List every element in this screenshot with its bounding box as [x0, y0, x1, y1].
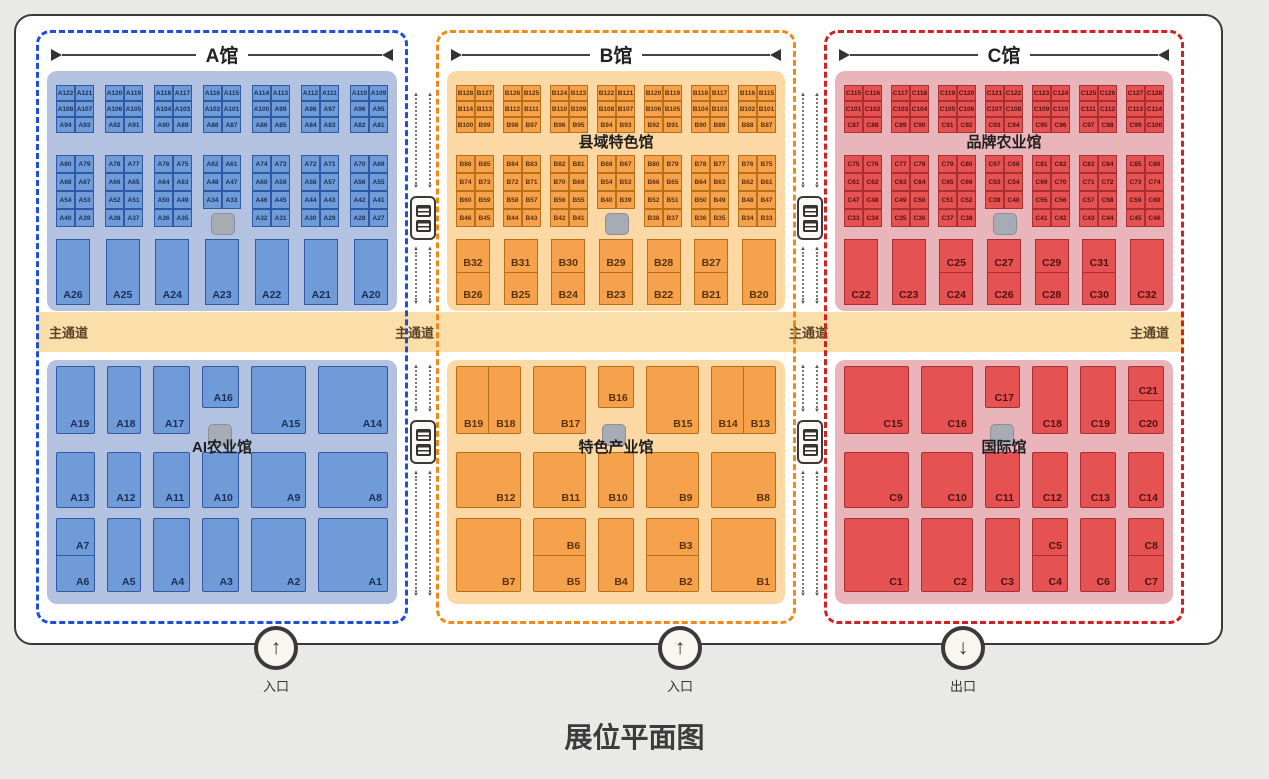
booth-large: A2 — [251, 518, 306, 592]
booth: C81 — [1032, 155, 1051, 173]
booth-label: A4 — [171, 576, 184, 588]
double-arrow-icon: ▲▼ — [412, 364, 420, 414]
booth-large: B12 — [456, 452, 521, 508]
booth: A86 — [252, 117, 271, 133]
booth: B78 — [691, 155, 710, 173]
booth-block: B120B119B106B105B92B91 — [644, 85, 682, 133]
booth: C117 — [891, 85, 910, 101]
booth-block: C115C116C101C102C87C88 — [844, 85, 882, 133]
booth-half: C4 — [1033, 556, 1067, 592]
booth-large: C22 — [844, 239, 878, 305]
booth-label: A15 — [281, 418, 300, 430]
booth: A73 — [271, 155, 290, 173]
booth-large: C11 — [985, 452, 1020, 508]
booth: B121 — [616, 85, 635, 101]
booth: A103 — [173, 101, 192, 117]
vertical-aisle-flow: ▲▼▲▼ — [799, 470, 821, 598]
booth-half: B32 — [457, 240, 489, 273]
booth-half: B24 — [552, 273, 584, 305]
booth: A60 — [252, 173, 271, 191]
booth-half: B21 — [695, 273, 727, 305]
booth: B41 — [569, 209, 588, 227]
booth-label: C8 — [1145, 540, 1158, 552]
booth: B56 — [550, 191, 569, 209]
escalator-step-glyph — [416, 205, 431, 217]
booth-large: C31C30 — [1082, 239, 1116, 305]
booth-block: A76A75A64A63A50A49A36A35 — [154, 155, 192, 227]
booth-label: C18 — [1043, 418, 1062, 430]
flow-arrow-down-icon: ▼ — [413, 408, 419, 414]
dotted-line — [429, 98, 431, 184]
exit-circle: ↓ — [941, 626, 985, 670]
booth: B34 — [738, 209, 757, 227]
booth: B80 — [644, 155, 663, 173]
booth-label: B16 — [609, 392, 628, 404]
vertical-aisle-flow: ▲▼▲▼ — [412, 246, 434, 306]
dotted-line — [429, 252, 431, 300]
booth: A50 — [154, 191, 173, 209]
hall-top-panel: C115C116C101C102C87C88C117C118C103C104C8… — [835, 71, 1173, 311]
booth: C108 — [1004, 101, 1023, 117]
hall-header: A馆 — [51, 41, 393, 68]
booth-label: A23 — [206, 289, 238, 301]
booth-block: C75C76C61C62C47C48C33C34 — [844, 155, 882, 227]
dimension-left-marker-icon — [839, 49, 850, 61]
booth-large: A24 — [155, 239, 189, 305]
flow-arrow-down-icon: ▼ — [413, 184, 419, 190]
booth-label: B28 — [648, 257, 680, 269]
booth: C45 — [1126, 209, 1145, 227]
booth: C62 — [863, 173, 882, 191]
booth-large: C6 — [1080, 518, 1116, 592]
booth-label: B12 — [496, 492, 515, 504]
booth-large: A25 — [106, 239, 140, 305]
escalator-icon — [410, 196, 436, 240]
booth-half: B14 — [712, 367, 744, 433]
double-arrow-icon: ▲▼ — [426, 92, 434, 190]
booth: B63 — [710, 173, 729, 191]
vertical-aisle-flow: ▲▼▲▼ — [412, 470, 434, 598]
booth-label: C27 — [988, 257, 1020, 269]
double-arrow-icon: ▲▼ — [426, 470, 434, 598]
booth-label: B25 — [505, 289, 537, 301]
arrow-up-icon: ↑ — [675, 636, 686, 660]
booth: A62 — [203, 155, 222, 173]
booth-label: B11 — [562, 492, 581, 504]
booth-label: A20 — [355, 289, 387, 301]
booth: C51 — [938, 191, 957, 209]
booth: B43 — [522, 209, 541, 227]
booth: C33 — [844, 209, 863, 227]
escalator-icon — [410, 420, 436, 464]
booth: A106 — [105, 101, 124, 117]
booth: C58 — [1098, 191, 1117, 209]
booth-label: A14 — [363, 418, 382, 430]
booth: C125 — [1079, 85, 1098, 101]
small-booth-section-upper: C115C116C101C102C87C88C117C118C103C104C8… — [844, 85, 1164, 133]
booth-large: B8 — [711, 452, 776, 508]
flow-arrow-down-icon: ▼ — [800, 300, 806, 306]
booth: B69 — [569, 173, 588, 191]
booth-large: B11 — [533, 452, 586, 508]
hall-bottom-panel: B19B18B17B16B15B14B13B12B11B10B9B8B7B6B5… — [447, 360, 785, 604]
booth-large: A9 — [251, 452, 306, 508]
booth: B54 — [597, 173, 616, 191]
page-title: 展位平面图 — [0, 716, 1269, 756]
booth: C77 — [891, 155, 910, 173]
booth-label: C30 — [1083, 289, 1115, 301]
bottom-booth-row: A13A12A11A10A9A8 — [56, 452, 388, 508]
booth: B111 — [522, 101, 541, 117]
booth-block: C119C120C105C106C91C92 — [938, 85, 976, 133]
booth: A41 — [369, 191, 388, 209]
dotted-line — [429, 370, 431, 408]
booth: B124 — [550, 85, 569, 101]
booth: A111 — [320, 85, 339, 101]
booth-block: B76B75B62B61B48B47B34B33 — [738, 155, 776, 227]
booth: B42 — [550, 209, 569, 227]
mid-booth-row: B32B26B31B25B30B24B29B23B28B22B27B21B20 — [456, 239, 776, 305]
booth: C44 — [1098, 209, 1117, 227]
hall-header: B馆 — [451, 41, 781, 68]
booth-large: B27B21 — [694, 239, 728, 305]
booth-label: B26 — [457, 289, 489, 301]
booth: A122 — [56, 85, 75, 101]
booth: B119 — [663, 85, 682, 101]
booth: A33 — [222, 191, 241, 209]
dimension-right-marker-icon — [382, 49, 393, 61]
booth-half: B3 — [647, 519, 698, 556]
escalator-step-glyph — [803, 220, 818, 232]
bottom-booth-row: B12B11B10B9B8 — [456, 452, 776, 508]
escalator-icon — [797, 420, 823, 464]
hall-section-label: 特色产业馆 — [447, 436, 785, 457]
booth: B58 — [503, 191, 522, 209]
booth-large: B7 — [456, 518, 521, 592]
booth: C69 — [1032, 173, 1051, 191]
booth-large: A10 — [202, 452, 239, 508]
booth: B62 — [738, 173, 757, 191]
booth: A118 — [154, 85, 173, 101]
double-arrow-icon: ▲▼ — [426, 246, 434, 306]
booth-label: A6 — [76, 576, 89, 588]
booth-large: A1 — [318, 518, 388, 592]
booth-large: B17 — [533, 366, 586, 434]
booth-label: A24 — [156, 289, 188, 301]
booth-block: B116B115B102B101B88B87 — [738, 85, 776, 133]
booth: C86 — [1145, 155, 1164, 173]
booth-block: A120A119A106A105A92A91 — [105, 85, 143, 133]
booth-block: C77C78C63C64C49C50C35C36 — [891, 155, 929, 227]
dotted-line — [802, 252, 804, 300]
hall-section-label: 品牌农业馆 — [835, 131, 1173, 152]
booth-large: A4 — [153, 518, 190, 592]
booth: B125 — [522, 85, 541, 101]
booth: A63 — [173, 173, 192, 191]
booth-block: A122A121A108A107A94A93 — [56, 85, 94, 133]
booth-large: C10 — [921, 452, 973, 508]
booth: A105 — [124, 101, 143, 117]
booth: A37 — [124, 209, 143, 227]
booth: A54 — [56, 191, 75, 209]
booth-label: A3 — [219, 576, 232, 588]
vertical-aisle-flow: ▲▼▲▼ — [412, 364, 434, 414]
dimension-line — [462, 54, 590, 56]
booth-half: C31 — [1083, 240, 1115, 273]
double-arrow-icon: ▲▼ — [799, 470, 807, 598]
hall-name: B馆 — [600, 41, 633, 68]
booth-block: B118B117B104B103B90B89 — [691, 85, 729, 133]
booth-large: A12 — [107, 452, 141, 508]
booth: A66 — [105, 173, 124, 191]
booth: C104 — [910, 101, 929, 117]
booth-block: C81C82C69C70C55C56C41C42 — [1032, 155, 1070, 227]
booth-large: C18 — [1032, 366, 1068, 434]
booth: B114 — [456, 101, 475, 117]
booth-label: B7 — [502, 576, 515, 588]
booth: B57 — [522, 191, 541, 209]
hall-bottom-panel: C15C16C17C18C19C21C20C9C10C11C12C13C14C1… — [835, 360, 1173, 604]
booth: C56 — [1051, 191, 1070, 209]
booth: C122 — [1004, 85, 1023, 101]
booth: B51 — [663, 191, 682, 209]
booth-label: A8 — [369, 492, 382, 504]
booth: B74 — [456, 173, 475, 191]
booth: B40 — [597, 191, 616, 209]
entrance-circle: ↑ — [658, 626, 702, 670]
booth-large: B19B18 — [456, 366, 521, 434]
bottom-booth-row: C1C2C3C5C4C6C8C7 — [844, 518, 1164, 592]
booth-large: A8 — [318, 452, 388, 508]
booth: B35 — [710, 209, 729, 227]
booth: C72 — [1098, 173, 1117, 191]
small-booth-section-upper: A122A121A108A107A94A93A120A119A106A105A9… — [56, 85, 388, 133]
booth-label: B32 — [457, 257, 489, 269]
booth: A64 — [154, 173, 173, 191]
booth-half: A6 — [57, 556, 94, 592]
booth: B45 — [475, 209, 494, 227]
booth-block: A78A77A66A65A52A51A38A37 — [105, 155, 143, 227]
hall-name: C馆 — [988, 41, 1021, 68]
booth-large: A3 — [202, 518, 239, 592]
booth: A100 — [252, 101, 271, 117]
booth: C64 — [910, 173, 929, 191]
booth: C59 — [1126, 191, 1145, 209]
booth-label: B8 — [757, 492, 770, 504]
booth-label: B18 — [496, 418, 515, 430]
booth-label: A12 — [116, 492, 135, 504]
booth-large: C25C24 — [939, 239, 973, 305]
flow-arrow-down-icon: ▼ — [427, 592, 433, 598]
hall-name: A馆 — [206, 41, 239, 68]
booth-large: C1 — [844, 518, 909, 592]
booth: A113 — [271, 85, 290, 101]
booth: A104 — [154, 101, 173, 117]
booth: C48 — [863, 191, 882, 209]
booth: C112 — [1098, 101, 1117, 117]
booth-label: C1 — [889, 576, 902, 588]
booth: B82 — [550, 155, 569, 173]
double-arrow-icon: ▲▼ — [813, 364, 821, 414]
booth: A27 — [369, 209, 388, 227]
booth-large: B31B25 — [504, 239, 538, 305]
hall-bottom-panel: A19A18A17A16A15A14A13A12A11A10A9A8A7A6A5… — [47, 360, 397, 604]
booth: A46 — [252, 191, 271, 209]
booth-label: C5 — [1049, 540, 1062, 552]
double-arrow-icon: ▲▼ — [412, 470, 420, 598]
booth: C67 — [985, 155, 1004, 173]
booth-large: C2 — [921, 518, 973, 592]
booth: C111 — [1079, 101, 1098, 117]
bottom-booth-row: C9C10C11C12C13C14 — [844, 452, 1164, 508]
booth: C60 — [1145, 191, 1164, 209]
booth: B66 — [644, 173, 663, 191]
booth: B59 — [475, 191, 494, 209]
booth: A114 — [252, 85, 271, 101]
booth-label: C21 — [1139, 385, 1158, 397]
booth: A47 — [222, 173, 241, 191]
booth-half: B13 — [744, 367, 775, 433]
booth-block: C123C124C109C110C95C96 — [1032, 85, 1070, 133]
booth-large: A13 — [56, 452, 95, 508]
booth: C38 — [957, 209, 976, 227]
booth-label: C31 — [1083, 257, 1115, 269]
booth: C70 — [1051, 173, 1070, 191]
booth-block: A72A71A58A57A44A43A30A29 — [301, 155, 339, 227]
booth: C57 — [1079, 191, 1098, 209]
booth-label: C28 — [1036, 289, 1068, 301]
hall-section-label: 国际馆 — [835, 436, 1173, 457]
booth: C61 — [844, 173, 863, 191]
booth: A102 — [203, 101, 222, 117]
booth-label: B2 — [679, 576, 692, 588]
exit-label: 出口 — [923, 676, 1003, 695]
booth: B123 — [569, 85, 588, 101]
booth: A61 — [222, 155, 241, 173]
booth-label: B6 — [567, 540, 580, 552]
booth-block: B128B127B114B113B100B99 — [456, 85, 494, 133]
booth: A79 — [75, 155, 94, 173]
booth: A44 — [301, 191, 320, 209]
entrance-label: 入口 — [640, 676, 720, 695]
booth-half: B6 — [534, 519, 585, 556]
booth: C41 — [1032, 209, 1051, 227]
booth: C101 — [844, 101, 863, 117]
dimension-right-marker-icon — [1158, 49, 1169, 61]
arrow-up-icon: ↑ — [271, 636, 282, 660]
arrow-down-icon: ↓ — [958, 636, 969, 660]
booth: B73 — [475, 173, 494, 191]
booth: C116 — [863, 85, 882, 101]
booth-large: B4 — [598, 518, 634, 592]
bottom-booth-row: A7A6A5A4A3A2A1 — [56, 518, 388, 592]
booth: B122 — [597, 85, 616, 101]
booth: A56 — [350, 173, 369, 191]
booth-label: C17 — [995, 392, 1014, 404]
booth: B85 — [475, 155, 494, 173]
hall-section-label: 县域特色馆 — [447, 131, 785, 152]
booth: A108 — [56, 101, 75, 117]
booth-label: C4 — [1049, 576, 1062, 588]
booth-large: C16 — [921, 366, 973, 434]
booth: C47 — [844, 191, 863, 209]
escalator-step-glyph — [803, 444, 818, 456]
booth-half: B18 — [489, 367, 520, 433]
booth: A32 — [252, 209, 271, 227]
booth-label: A5 — [122, 576, 135, 588]
booth: C53 — [985, 173, 1004, 191]
booth: C126 — [1098, 85, 1117, 101]
booth: A59 — [271, 173, 290, 191]
booth: C85 — [1126, 155, 1145, 173]
booth-half: B22 — [648, 273, 680, 305]
dotted-line — [429, 476, 431, 592]
dimension-left-marker-icon — [51, 49, 62, 61]
booth-half: B25 — [505, 273, 537, 305]
booth-large: C14 — [1128, 452, 1164, 508]
booth: C115 — [844, 85, 863, 101]
booth-large: A22 — [255, 239, 289, 305]
booth: A109 — [369, 85, 388, 101]
booth-block: A112A111A98A97A84A83 — [301, 85, 339, 133]
dimension-right-marker-icon — [770, 49, 781, 61]
booth-half: C24 — [940, 273, 972, 305]
booth: A53 — [75, 191, 94, 209]
booth-large: A26 — [56, 239, 90, 305]
booth: B53 — [616, 173, 635, 191]
flow-arrow-down-icon: ▼ — [413, 300, 419, 306]
booth: A30 — [301, 209, 320, 227]
booth: A115 — [222, 85, 241, 101]
booth-large: A14 — [318, 366, 388, 434]
booth-label: C15 — [883, 418, 902, 430]
booth: A90 — [154, 117, 173, 133]
booth-label: B29 — [600, 257, 632, 269]
booth: B79 — [663, 155, 682, 173]
booth-label: A11 — [165, 492, 184, 504]
dotted-line — [816, 370, 818, 408]
booth: B38 — [644, 209, 663, 227]
booth: B70 — [550, 173, 569, 191]
booth-block: B80B79B66B65B52B51B38B37 — [644, 155, 682, 227]
booth: B113 — [475, 101, 494, 117]
booth-label: C22 — [845, 289, 877, 301]
booth: A68 — [56, 173, 75, 191]
booth: A34 — [203, 191, 222, 209]
booth-large: C3 — [985, 518, 1020, 592]
booth-large: B30B24 — [551, 239, 585, 305]
booth: A74 — [252, 155, 271, 173]
booth-block: C117C118C103C104C89C90 — [891, 85, 929, 133]
booth-large: C9 — [844, 452, 909, 508]
vertical-aisle-flow: ▲▼▲▼ — [799, 92, 821, 190]
flow-arrow-down-icon: ▼ — [814, 592, 820, 598]
booth-label: A25 — [107, 289, 139, 301]
dotted-line — [816, 98, 818, 184]
booth: B37 — [663, 209, 682, 227]
booth-large: B29B23 — [599, 239, 633, 305]
booth-label: B13 — [751, 418, 770, 430]
flow-arrow-down-icon: ▼ — [814, 184, 820, 190]
booth-large: C12 — [1032, 452, 1068, 508]
vertical-aisle-flow: ▲▼▲▼ — [799, 246, 821, 306]
booth: C73 — [1126, 173, 1145, 191]
booth-label: A19 — [70, 418, 89, 430]
booth: B107 — [616, 101, 635, 117]
booth: B86 — [456, 155, 475, 173]
booth: C54 — [1004, 173, 1023, 191]
booth-label: B3 — [679, 540, 692, 552]
